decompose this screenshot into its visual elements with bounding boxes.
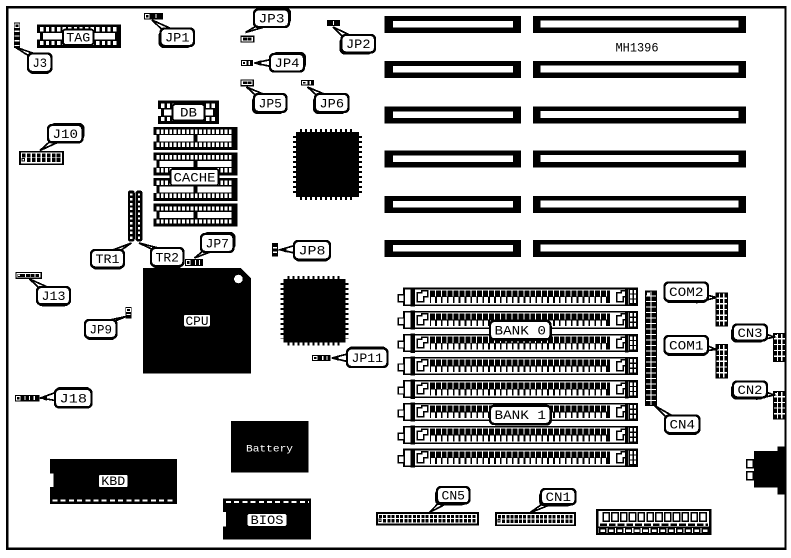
svg-text:JP1: JP1 [165, 31, 190, 46]
svg-text:JP2: JP2 [346, 37, 371, 52]
svg-text:CN3: CN3 [738, 326, 763, 341]
svg-text:BIOS: BIOS [251, 514, 284, 528]
svg-text:COM1: COM1 [669, 338, 704, 353]
svg-text:JP5: JP5 [259, 96, 283, 111]
svg-text:TAG: TAG [66, 31, 90, 45]
svg-text:J3: J3 [33, 56, 48, 71]
svg-text:DB: DB [180, 107, 198, 121]
svg-text:JP7: JP7 [206, 236, 230, 251]
svg-text:MH1396: MH1396 [616, 42, 659, 56]
svg-text:CACHE: CACHE [174, 171, 216, 185]
svg-text:JP6: JP6 [320, 96, 345, 111]
svg-text:COM2: COM2 [669, 285, 704, 300]
svg-text:CN1: CN1 [546, 490, 572, 505]
svg-text:J10: J10 [53, 127, 79, 142]
svg-text:JP4: JP4 [275, 56, 300, 71]
svg-text:CPU: CPU [186, 315, 209, 329]
svg-text:JP3: JP3 [259, 12, 285, 27]
svg-text:JP11: JP11 [352, 351, 384, 366]
svg-text:JP9: JP9 [90, 322, 113, 337]
svg-text:CN2: CN2 [738, 383, 763, 398]
svg-text:CN4: CN4 [670, 418, 696, 433]
svg-text:JP8: JP8 [299, 244, 326, 259]
svg-text:BANK 0: BANK 0 [495, 323, 547, 338]
svg-text:J13: J13 [42, 289, 66, 304]
svg-text:Battery: Battery [246, 444, 293, 456]
svg-text:TR2: TR2 [156, 250, 180, 265]
svg-text:KBD: KBD [101, 475, 125, 489]
svg-text:TR1: TR1 [96, 252, 120, 267]
svg-text:J18: J18 [60, 391, 88, 406]
svg-text:CN5: CN5 [442, 488, 466, 503]
svg-text:BANK 1: BANK 1 [495, 408, 547, 423]
